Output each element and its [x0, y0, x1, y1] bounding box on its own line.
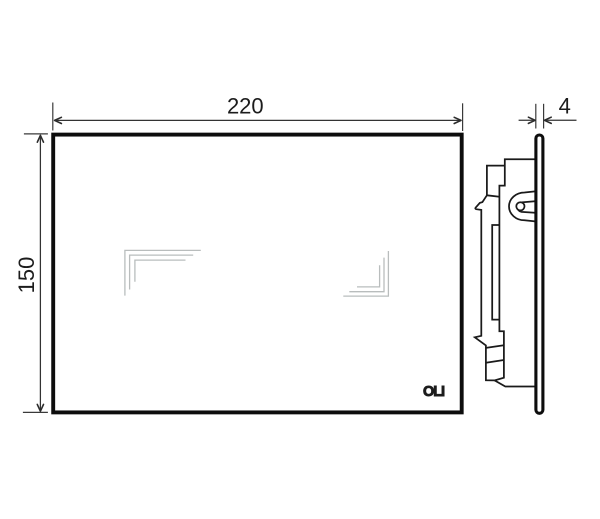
svg-text:OLI: OLI	[423, 384, 445, 400]
svg-text:4: 4	[559, 94, 571, 119]
svg-text:150: 150	[14, 257, 39, 294]
svg-text:220: 220	[227, 93, 264, 118]
